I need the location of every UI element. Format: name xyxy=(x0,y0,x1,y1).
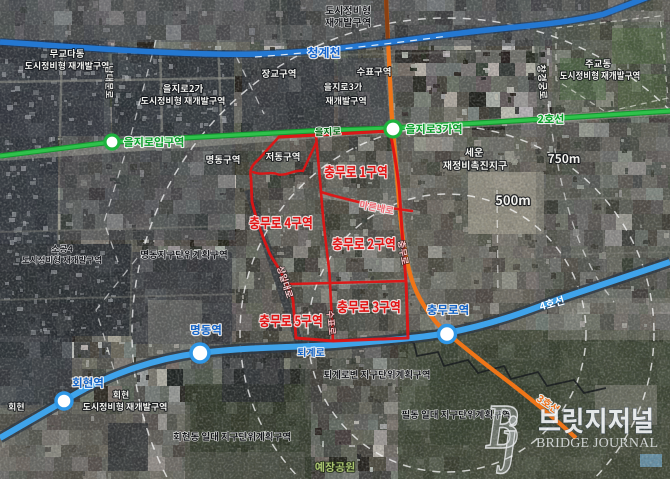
svg-text:BRIDGE JOURNAL: BRIDGE JOURNAL xyxy=(536,436,658,451)
